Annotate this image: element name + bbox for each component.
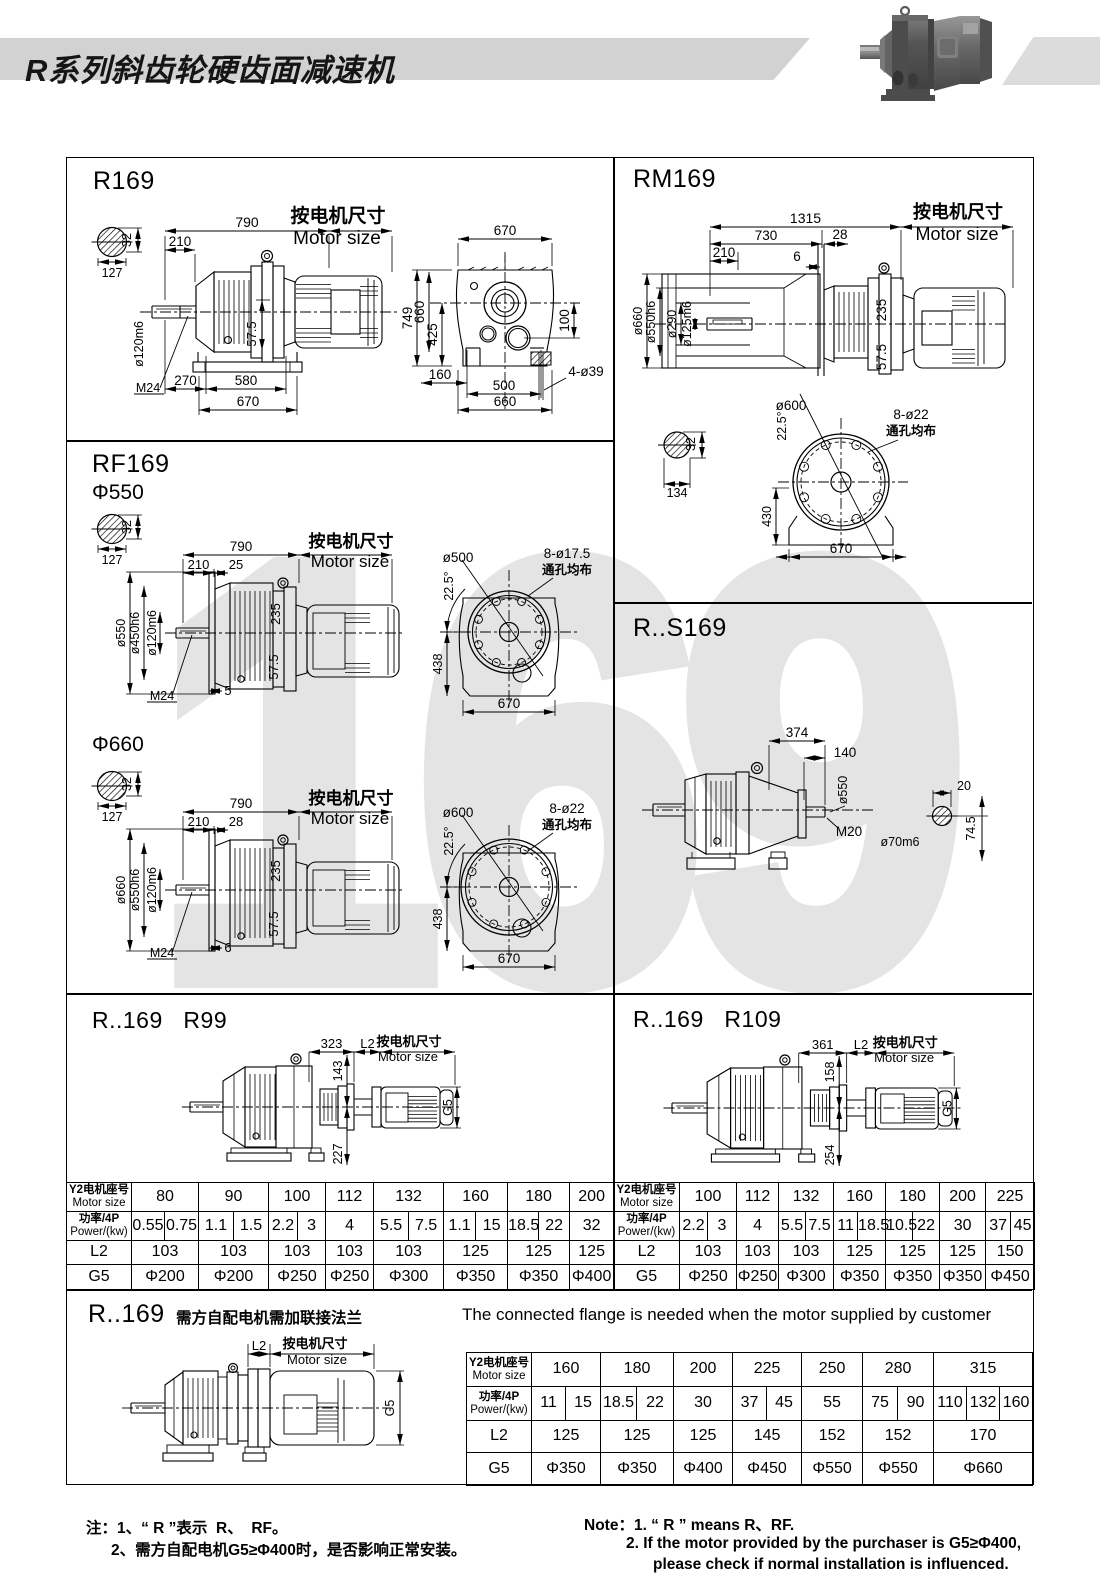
svg-text:ø120m6: ø120m6 bbox=[145, 867, 159, 913]
svg-text:6: 6 bbox=[793, 249, 801, 264]
svg-text:ø70m6: ø70m6 bbox=[881, 835, 920, 849]
svg-text:ø600: ø600 bbox=[776, 398, 807, 413]
svg-text:74.5: 74.5 bbox=[964, 816, 978, 840]
svg-text:8-ø17.5: 8-ø17.5 bbox=[544, 546, 591, 561]
svg-text:127: 127 bbox=[102, 266, 123, 280]
svg-text:Motor size: Motor size bbox=[874, 1050, 934, 1065]
svg-text:323: 323 bbox=[321, 1036, 343, 1051]
svg-text:57.5: 57.5 bbox=[874, 344, 889, 370]
svg-text:按电机尺寸: 按电机尺寸 bbox=[913, 201, 1003, 222]
svg-text:160: 160 bbox=[429, 367, 452, 382]
svg-text:L2: L2 bbox=[252, 1338, 266, 1353]
svg-text:235: 235 bbox=[874, 299, 889, 322]
svg-text:按电机尺寸: 按电机尺寸 bbox=[309, 788, 394, 808]
svg-text:580: 580 bbox=[235, 373, 258, 388]
svg-text:ø120m6: ø120m6 bbox=[145, 610, 159, 656]
svg-text:790: 790 bbox=[235, 214, 259, 230]
svg-text:ø550h6: ø550h6 bbox=[644, 301, 658, 343]
svg-text:22.5°: 22.5° bbox=[442, 571, 456, 600]
svg-text:通孔均布: 通孔均布 bbox=[542, 562, 593, 577]
svg-text:ø550h6: ø550h6 bbox=[128, 869, 142, 911]
svg-text:M24: M24 bbox=[136, 381, 160, 395]
svg-text:235: 235 bbox=[268, 603, 283, 625]
svg-text:L2: L2 bbox=[360, 1036, 374, 1051]
svg-text:790: 790 bbox=[230, 796, 253, 811]
svg-text:通孔均布: 通孔均布 bbox=[886, 423, 937, 438]
svg-text:ø600: ø600 bbox=[443, 805, 474, 820]
svg-text:134: 134 bbox=[667, 486, 688, 500]
svg-text:100: 100 bbox=[557, 309, 572, 332]
svg-text:25: 25 bbox=[229, 557, 243, 572]
svg-text:1315: 1315 bbox=[790, 210, 821, 226]
svg-text:ø550: ø550 bbox=[114, 619, 128, 648]
svg-text:按电机尺寸: 按电机尺寸 bbox=[290, 204, 385, 227]
svg-text:57.5: 57.5 bbox=[266, 654, 281, 679]
svg-text:430: 430 bbox=[760, 506, 774, 527]
svg-text:438: 438 bbox=[431, 909, 445, 930]
svg-text:M24: M24 bbox=[150, 689, 174, 703]
svg-text:127: 127 bbox=[102, 553, 123, 567]
svg-text:425: 425 bbox=[425, 323, 440, 346]
svg-text:L2: L2 bbox=[854, 1037, 868, 1052]
svg-text:按电机尺寸: 按电机尺寸 bbox=[376, 1034, 441, 1049]
svg-text:ø660: ø660 bbox=[631, 307, 645, 336]
svg-text:Motor size: Motor size bbox=[287, 1352, 347, 1367]
svg-text:670: 670 bbox=[498, 696, 521, 711]
svg-text:670: 670 bbox=[498, 951, 521, 966]
svg-text:ø290: ø290 bbox=[665, 310, 679, 339]
svg-text:4-ø39: 4-ø39 bbox=[568, 364, 603, 379]
svg-text:210: 210 bbox=[188, 557, 210, 572]
svg-text:ø660: ø660 bbox=[114, 876, 128, 905]
svg-text:G5: G5 bbox=[940, 1100, 954, 1117]
svg-text:M20: M20 bbox=[836, 824, 862, 839]
svg-text:670: 670 bbox=[494, 223, 517, 238]
svg-text:210: 210 bbox=[188, 814, 210, 829]
svg-text:670: 670 bbox=[237, 394, 260, 409]
svg-text:670: 670 bbox=[830, 541, 853, 556]
svg-text:210: 210 bbox=[169, 234, 192, 249]
svg-text:32: 32 bbox=[684, 437, 698, 451]
svg-text:Motor size: Motor size bbox=[378, 1049, 438, 1064]
svg-text:254: 254 bbox=[823, 1145, 837, 1166]
svg-text:ø120m6: ø120m6 bbox=[132, 321, 146, 367]
svg-text:按电机尺寸: 按电机尺寸 bbox=[873, 1035, 938, 1050]
svg-text:20: 20 bbox=[957, 779, 971, 793]
svg-text:210: 210 bbox=[713, 245, 736, 260]
svg-text:ø450h6: ø450h6 bbox=[128, 612, 142, 654]
svg-text:374: 374 bbox=[786, 725, 809, 740]
svg-text:140: 140 bbox=[834, 745, 857, 760]
svg-text:6: 6 bbox=[224, 940, 231, 955]
svg-text:Motor size: Motor size bbox=[311, 552, 389, 571]
svg-text:ø500: ø500 bbox=[443, 550, 474, 565]
svg-text:28: 28 bbox=[832, 227, 847, 242]
svg-text:361: 361 bbox=[812, 1037, 834, 1052]
svg-text:660: 660 bbox=[412, 301, 427, 324]
svg-text:22.5°: 22.5° bbox=[442, 826, 456, 855]
svg-text:5: 5 bbox=[224, 683, 231, 698]
svg-text:ø550: ø550 bbox=[836, 776, 850, 805]
svg-text:Motor size: Motor size bbox=[293, 228, 381, 249]
svg-text:143: 143 bbox=[331, 1061, 345, 1082]
svg-text:8-ø22: 8-ø22 bbox=[549, 801, 584, 816]
svg-text:57.5: 57.5 bbox=[244, 321, 259, 346]
svg-text:660: 660 bbox=[494, 394, 517, 409]
svg-text:270: 270 bbox=[174, 373, 197, 388]
svg-text:730: 730 bbox=[755, 228, 778, 243]
svg-text:127: 127 bbox=[102, 810, 123, 824]
svg-text:158: 158 bbox=[823, 1062, 837, 1083]
svg-text:ø125m6: ø125m6 bbox=[680, 301, 694, 347]
svg-text:按电机尺寸: 按电机尺寸 bbox=[309, 531, 394, 551]
svg-text:按电机尺寸: 按电机尺寸 bbox=[282, 1336, 347, 1351]
svg-text:28: 28 bbox=[229, 814, 243, 829]
svg-text:32: 32 bbox=[120, 520, 134, 534]
svg-text:32: 32 bbox=[120, 777, 134, 791]
svg-text:M24: M24 bbox=[150, 946, 174, 960]
svg-text:227: 227 bbox=[331, 1144, 345, 1165]
svg-text:8-ø22: 8-ø22 bbox=[893, 407, 928, 422]
svg-text:Motor size: Motor size bbox=[915, 224, 998, 244]
svg-text:32: 32 bbox=[120, 233, 134, 247]
svg-text:G5: G5 bbox=[441, 1099, 455, 1116]
svg-text:235: 235 bbox=[268, 860, 283, 882]
svg-text:通孔均布: 通孔均布 bbox=[542, 817, 593, 832]
svg-text:G5: G5 bbox=[383, 1400, 397, 1417]
svg-text:438: 438 bbox=[431, 654, 445, 675]
svg-text:Motor size: Motor size bbox=[311, 809, 389, 828]
svg-text:790: 790 bbox=[230, 539, 253, 554]
svg-text:22.5°: 22.5° bbox=[775, 411, 789, 440]
svg-text:57.5: 57.5 bbox=[266, 911, 281, 936]
svg-text:500: 500 bbox=[493, 378, 516, 393]
